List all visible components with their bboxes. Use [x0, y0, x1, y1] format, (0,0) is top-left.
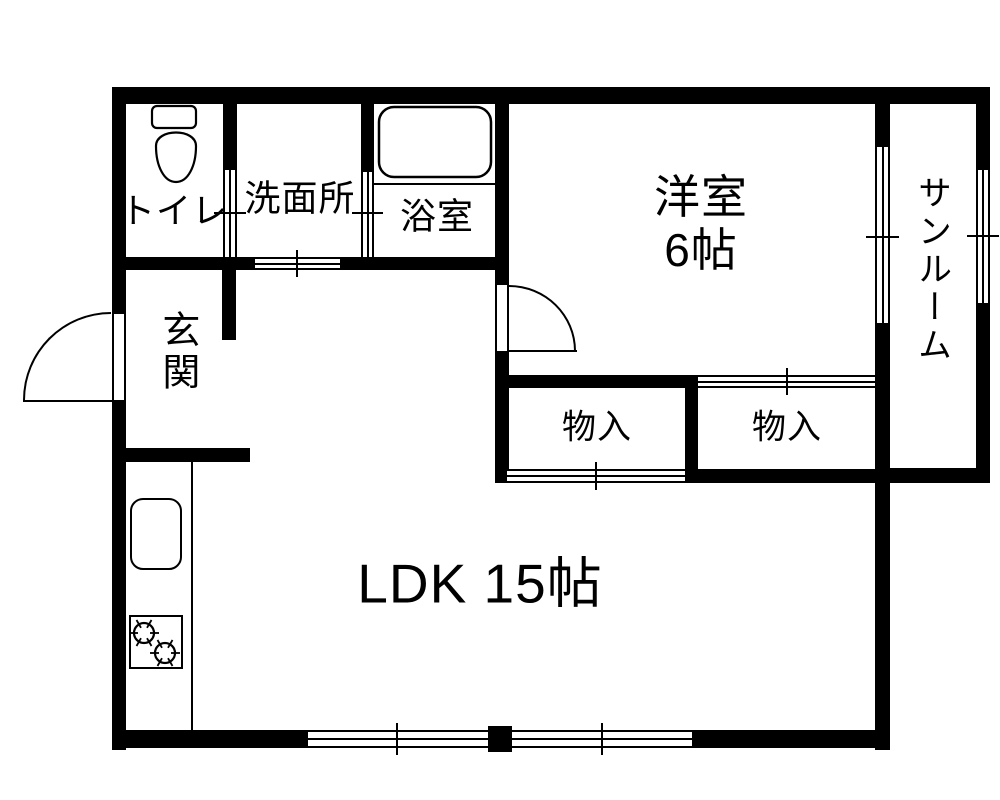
- window-tick: [967, 235, 999, 237]
- wall-entrance-bottom: [112, 448, 250, 462]
- room-label-washroom: 洗面所: [244, 177, 355, 218]
- wall-central-upper: [495, 87, 509, 283]
- door-tick: [352, 212, 383, 214]
- entrance-door-leaf-open: [23, 400, 113, 402]
- room-label-entrance: 玄関: [154, 310, 198, 394]
- western-room-door-swing-arc: [509, 285, 576, 351]
- western-room-name: 洋室: [654, 171, 748, 224]
- wall-closet-bottom-stub: [495, 469, 507, 483]
- wall-closet-top: [495, 375, 698, 388]
- window-tick: [601, 723, 603, 755]
- wall-entrance-right: [222, 270, 236, 340]
- western-room-size: 6帖: [654, 224, 748, 277]
- wall-outer-bottom-left: [112, 730, 308, 748]
- kitchen-sink-icon: [129, 497, 185, 573]
- wall-closet-divider: [685, 375, 698, 483]
- room-label-closet-left: 物入: [562, 408, 632, 447]
- door-tick: [786, 368, 788, 395]
- wall-sunroom-bottom: [875, 468, 990, 483]
- door-tick: [595, 462, 597, 490]
- door-tick: [296, 250, 298, 277]
- wall-washroom-bath: [361, 104, 374, 172]
- wall-outer-left: [112, 87, 126, 750]
- bathtub-icon: [377, 105, 495, 181]
- toilet-icon: [146, 102, 202, 186]
- wall-central-lower: [495, 352, 509, 483]
- western-room-door-leaf-closed: [495, 283, 509, 353]
- wall-outer-bottom-right: [692, 730, 890, 748]
- wall-hall-left: [112, 257, 255, 270]
- room-label-toilet: トイレ: [120, 192, 228, 232]
- room-label-closet-right: 物入: [752, 408, 822, 447]
- wall-closet-bottom-right: [685, 469, 883, 483]
- floor-plan: トイレ 洗面所 浴室 洋室 6帖 サンルーム 玄関 物入 物入 LDK 15帖: [0, 0, 1000, 800]
- stove-icon: [128, 614, 186, 672]
- room-label-western-room: 洋室 6帖: [654, 171, 748, 277]
- wall-hall-right: [340, 257, 509, 270]
- wall-bottom-center-pier: [488, 726, 512, 752]
- kitchen-counter-line: [191, 462, 193, 730]
- room-label-bathroom: 浴室: [400, 195, 474, 236]
- window-ldk-bottom-left: [308, 730, 488, 748]
- window-tick: [866, 236, 899, 238]
- window-tick: [396, 723, 398, 755]
- wall-toilet-washroom: [223, 104, 237, 170]
- sliding-door-bathroom: [361, 172, 374, 257]
- room-label-sunroom: サンルーム: [911, 175, 950, 365]
- entrance-door-leaf-closed: [112, 312, 126, 402]
- wall-outer-top: [112, 87, 990, 104]
- bathtub-platform-line: [374, 183, 495, 185]
- entrance-door-swing-arc: [23, 312, 111, 400]
- room-label-ldk: LDK 15帖: [357, 552, 602, 615]
- window-western-sunroom: [875, 147, 890, 323]
